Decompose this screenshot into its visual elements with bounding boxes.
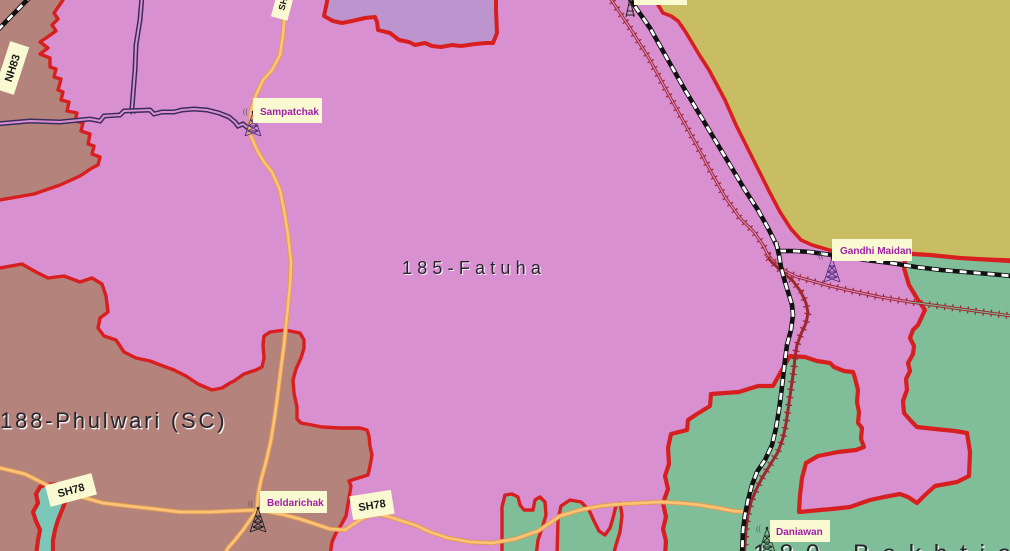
svg-text:Gandhi Maidan: Gandhi Maidan bbox=[840, 246, 912, 257]
svg-text:((: (( bbox=[818, 251, 824, 260]
svg-text:Daniawan: Daniawan bbox=[776, 527, 823, 538]
svg-text:180-Bakhtiarpur: 180-Bakhtiarpur bbox=[753, 540, 1010, 551]
svg-text:((: (( bbox=[248, 501, 253, 508]
svg-text:((: (( bbox=[243, 109, 248, 116]
svg-text:Beldarichak: Beldarichak bbox=[267, 498, 324, 509]
svg-text:((: (( bbox=[756, 526, 761, 533]
svg-text:Sampatchak: Sampatchak bbox=[260, 107, 319, 118]
svg-text:188-Phulwari (SC): 188-Phulwari (SC) bbox=[0, 408, 227, 433]
svg-text:185-Fatuha: 185-Fatuha bbox=[402, 258, 546, 278]
